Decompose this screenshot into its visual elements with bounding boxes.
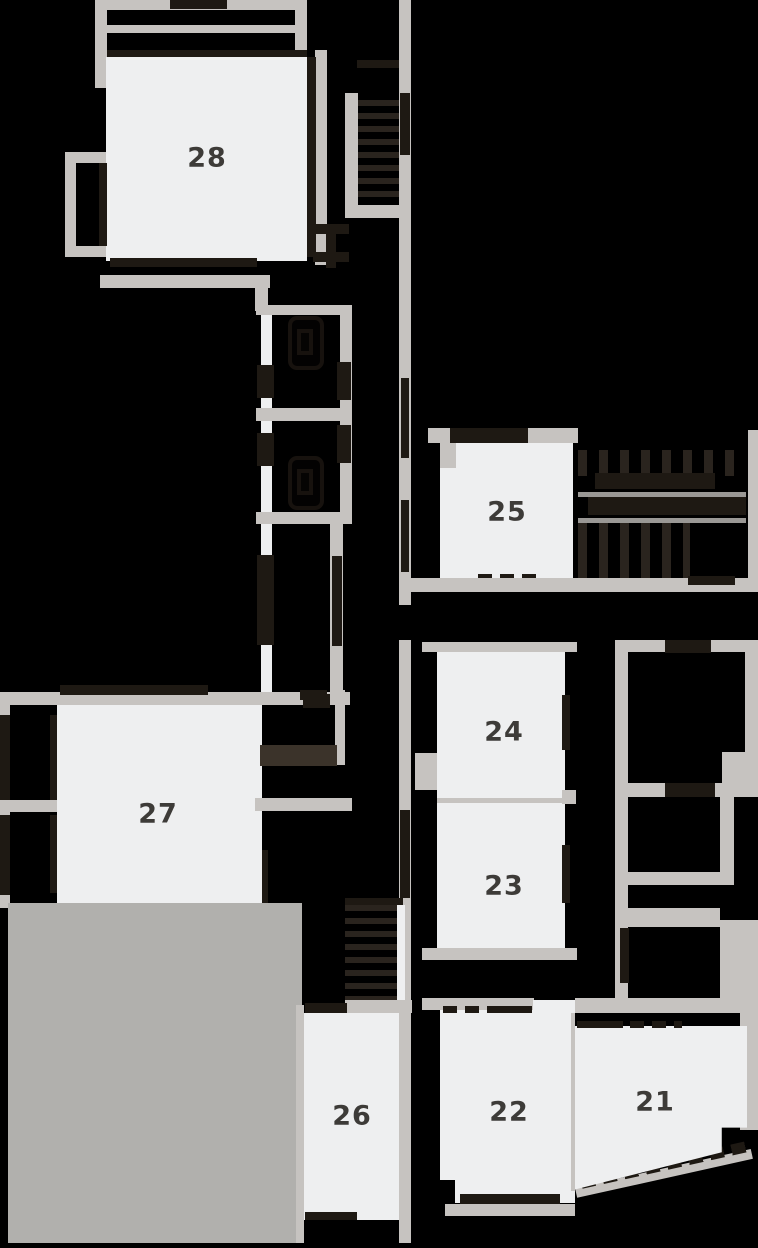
wall (422, 948, 577, 960)
door-line (303, 694, 330, 708)
door-line (665, 640, 711, 653)
wall (422, 642, 577, 652)
unit-label-22: 22 (489, 1097, 529, 1128)
balcony-wall (65, 152, 76, 257)
unit-label-24: 24 (484, 717, 524, 748)
window-line (577, 1021, 623, 1028)
wall (745, 640, 758, 755)
window-line (357, 60, 400, 68)
stairwell-top (358, 100, 400, 200)
wall (345, 1000, 412, 1013)
column-symbol (326, 224, 336, 268)
floor-plan-canvas: 28 25 24 23 (0, 0, 758, 1248)
window-line (401, 378, 409, 458)
wall (615, 908, 720, 927)
unit-label-21: 21 (635, 1087, 675, 1118)
unit-label-25: 25 (487, 497, 527, 528)
unit-label-27: 27 (138, 799, 178, 830)
window-line (562, 695, 570, 750)
wall (575, 998, 758, 1013)
wall (296, 1005, 304, 1243)
door-line (170, 0, 227, 9)
stair-rail (588, 497, 746, 515)
window-line (562, 845, 570, 903)
wall (255, 798, 352, 811)
elevator-2-car (297, 469, 313, 495)
wall (100, 275, 270, 288)
stair-landing (345, 93, 358, 215)
wall (722, 752, 758, 785)
door-line (337, 425, 351, 463)
window-line (305, 1003, 347, 1013)
window-line (50, 715, 57, 800)
unit-divider (571, 1013, 575, 1191)
unit-label-26: 26 (332, 1101, 372, 1132)
wall (748, 430, 758, 592)
unit-22[interactable] (533, 1000, 575, 1012)
window-line (332, 556, 342, 646)
window-line (262, 850, 268, 903)
wall (445, 1204, 575, 1216)
unit-label-23: 23 (484, 871, 524, 902)
window-line (0, 815, 10, 895)
window-line (257, 555, 274, 645)
window-line (0, 715, 10, 800)
door-line (257, 433, 274, 466)
door-line (450, 428, 528, 443)
window-line (99, 163, 107, 246)
stairwell-small (345, 905, 403, 1003)
terrace (8, 903, 302, 1243)
stair-rail (595, 473, 715, 489)
wall (256, 305, 352, 315)
wall (415, 753, 437, 790)
window-line (460, 1194, 560, 1204)
window-line (400, 93, 410, 155)
window-line (630, 1021, 682, 1028)
wall (720, 920, 758, 1000)
wall (256, 408, 352, 421)
balcony-wall (65, 246, 107, 257)
unit-22[interactable] (440, 1010, 575, 1180)
door-line (337, 362, 351, 400)
window-line (443, 1006, 483, 1013)
window-line (110, 258, 257, 267)
wall (440, 443, 456, 468)
door-line (688, 576, 735, 585)
stairwell-main (578, 523, 690, 583)
door-line (665, 783, 715, 797)
door-line (257, 365, 274, 398)
window-line (620, 928, 629, 983)
balcony-rail (107, 25, 307, 33)
window-line (305, 1212, 357, 1220)
wall (720, 783, 734, 875)
window-line (487, 1006, 532, 1013)
window-line (60, 685, 208, 695)
stair-wall-face (397, 905, 405, 1005)
wall (562, 790, 576, 804)
wall (256, 512, 352, 524)
window-line (401, 500, 409, 572)
kitchen-counter (260, 745, 337, 766)
unit-label-28: 28 (187, 143, 227, 174)
elevator-1-car (297, 329, 313, 355)
wall (0, 800, 57, 812)
window-line (50, 815, 57, 893)
wall (628, 872, 734, 885)
window-line (400, 810, 410, 898)
